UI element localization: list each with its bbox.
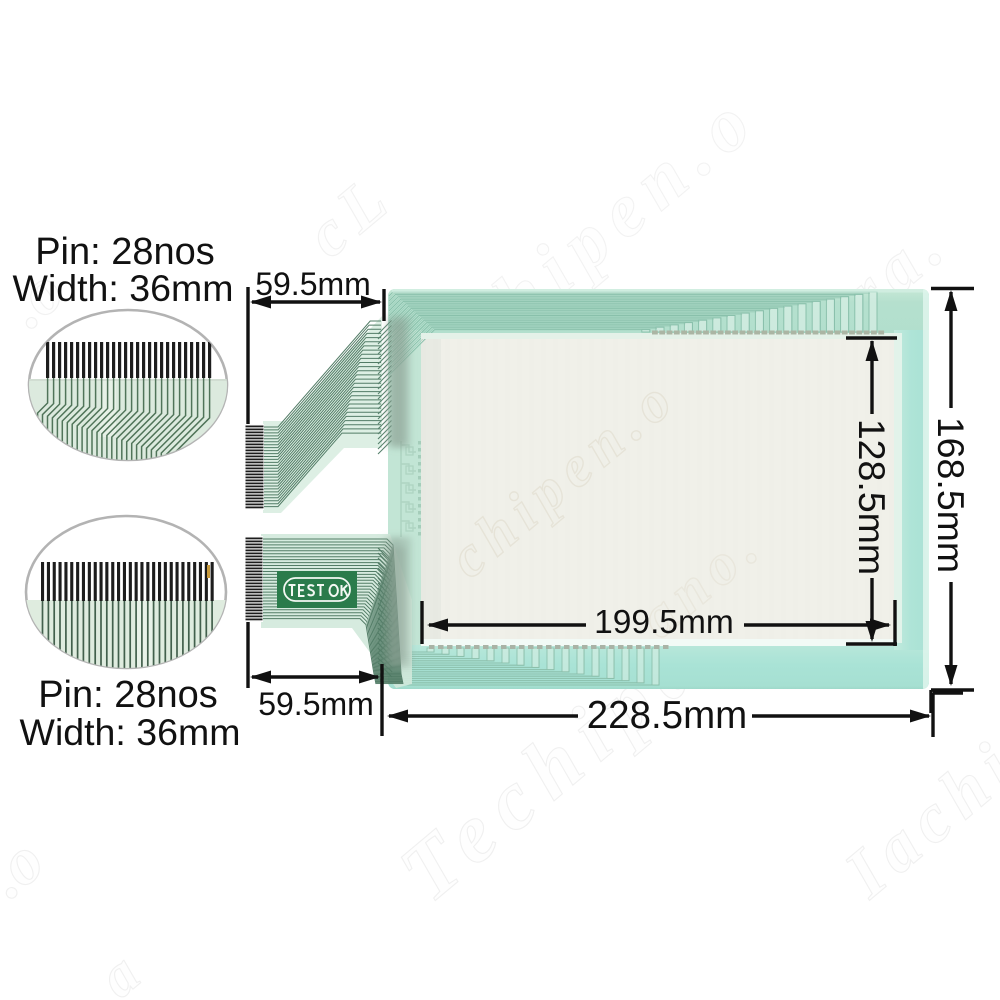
svg-text:199.5mm: 199.5mm bbox=[594, 604, 734, 641]
svg-text:Width: 36mm: Width: 36mm bbox=[13, 267, 234, 309]
svg-text:228.5mm: 228.5mm bbox=[587, 694, 748, 737]
svg-text:59.5mm: 59.5mm bbox=[255, 266, 371, 302]
svg-text:Pin: 28nos: Pin: 28nos bbox=[38, 674, 218, 716]
svg-text:59.5mm: 59.5mm bbox=[258, 686, 374, 722]
svg-text:128.5mm: 128.5mm bbox=[851, 419, 893, 575]
svg-text:Width: 36mm: Width: 36mm bbox=[20, 711, 241, 753]
svg-text:168.5mm: 168.5mm bbox=[930, 417, 972, 573]
